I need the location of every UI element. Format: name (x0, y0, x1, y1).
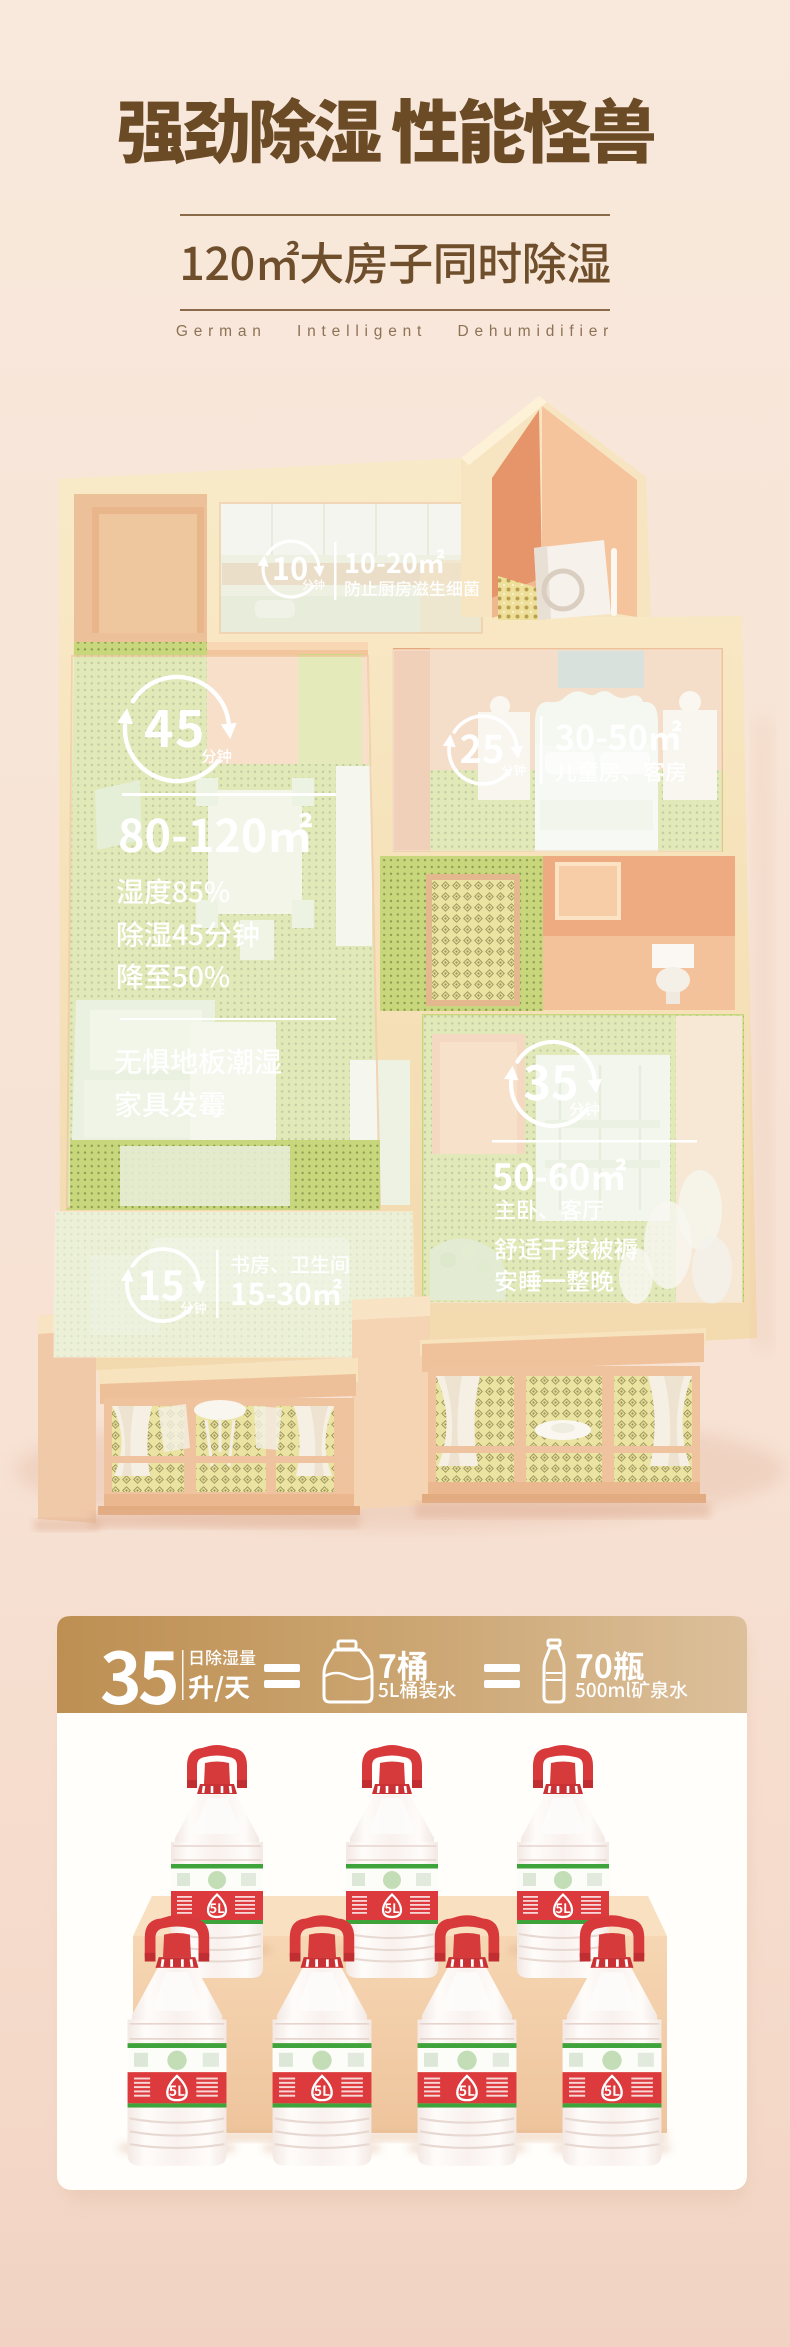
svg-text:German Intelligent Dehumid: German Intelligent Dehumidifier (176, 323, 614, 340)
